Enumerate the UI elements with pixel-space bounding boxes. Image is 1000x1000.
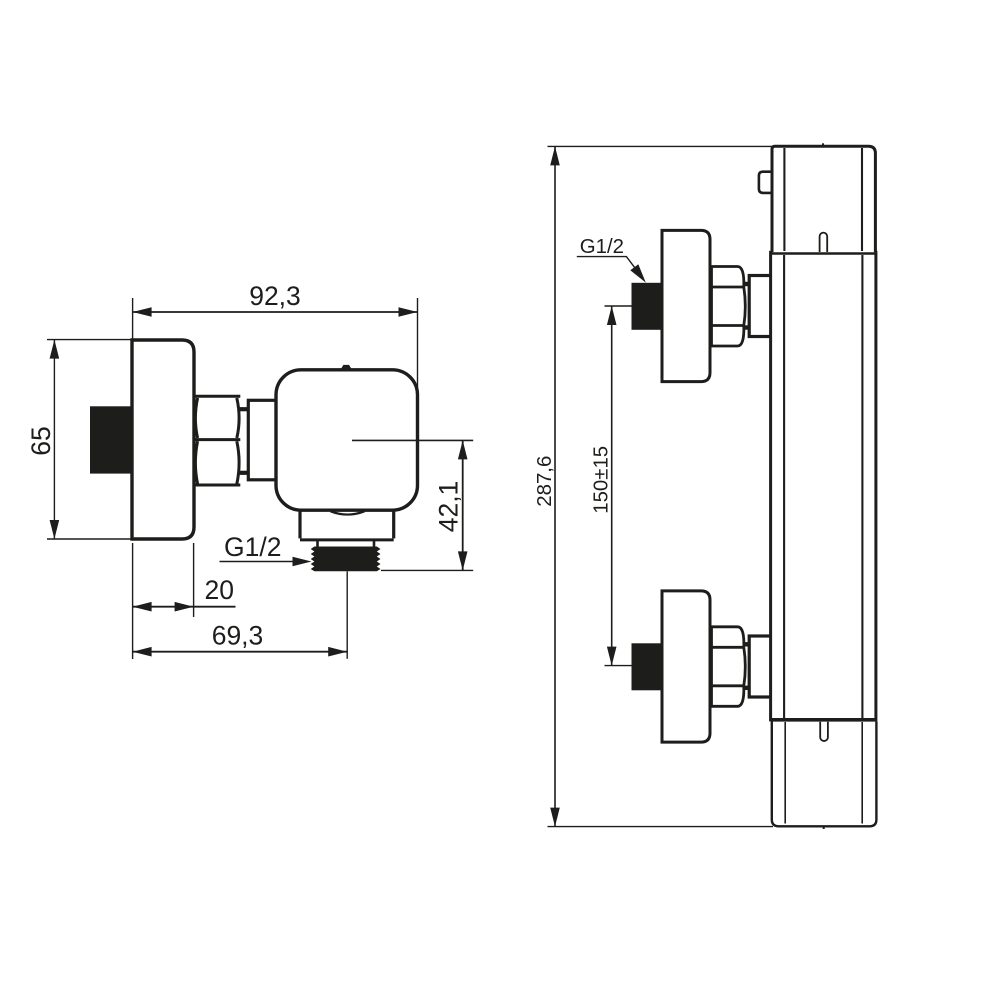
svg-text:65: 65 (26, 426, 56, 455)
svg-text:69,3: 69,3 (212, 620, 264, 650)
svg-text:150±15: 150±15 (590, 446, 612, 514)
svg-text:G1/2: G1/2 (580, 236, 624, 258)
svg-text:20: 20 (205, 575, 234, 605)
svg-text:287,6: 287,6 (534, 456, 556, 507)
svg-text:92,3: 92,3 (249, 281, 301, 311)
svg-text:42,1: 42,1 (433, 481, 463, 533)
svg-text:G1/2: G1/2 (224, 532, 281, 562)
